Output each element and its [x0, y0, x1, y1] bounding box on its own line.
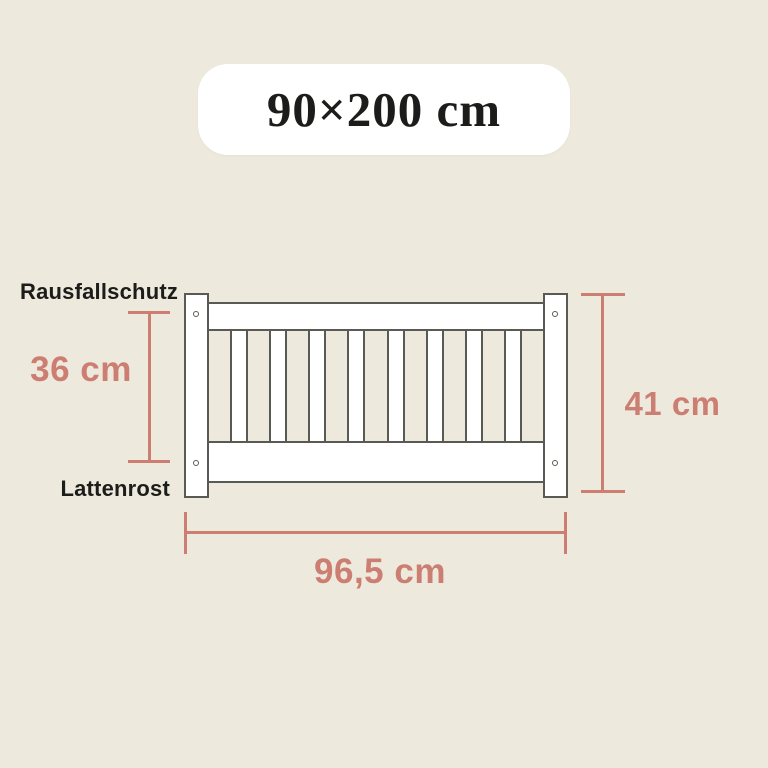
slat [308, 328, 326, 444]
size-title-pill: 90×200 cm [198, 64, 570, 155]
top-rail [207, 302, 545, 331]
screw-hole [193, 460, 199, 466]
size-title: 90×200 cm [267, 85, 501, 134]
screw-hole [552, 460, 558, 466]
outer-height-value: 41 cm [620, 386, 725, 422]
dimension-tick [581, 293, 625, 296]
slat [269, 328, 287, 444]
slatted-base-label: Lattenrost [20, 477, 170, 501]
width-dimension-line [185, 531, 567, 534]
left-post [184, 293, 209, 498]
right-post [543, 293, 568, 498]
infographic-canvas: 90×200 cm Rausfallschutz Lattenrost 36 c… [0, 0, 768, 768]
slat [230, 328, 248, 444]
screw-hole [552, 311, 558, 317]
dimension-tick [564, 512, 567, 554]
dimension-tick [128, 311, 170, 314]
inner-height-value: 36 cm [16, 351, 146, 390]
bottom-rail [207, 441, 545, 483]
screw-hole [193, 311, 199, 317]
slat [347, 328, 365, 444]
width-value: 96,5 cm [240, 553, 520, 592]
outer-height-dimension-line [601, 295, 604, 493]
slat [426, 328, 444, 444]
guard-rail-label: Rausfallschutz [20, 280, 176, 304]
slat [465, 328, 483, 444]
dimension-tick [128, 460, 170, 463]
inner-height-dimension-line [148, 313, 151, 463]
slat [504, 328, 522, 444]
dimension-tick [581, 490, 625, 493]
dimension-tick [184, 512, 187, 554]
slats [209, 328, 543, 444]
slat [387, 328, 405, 444]
